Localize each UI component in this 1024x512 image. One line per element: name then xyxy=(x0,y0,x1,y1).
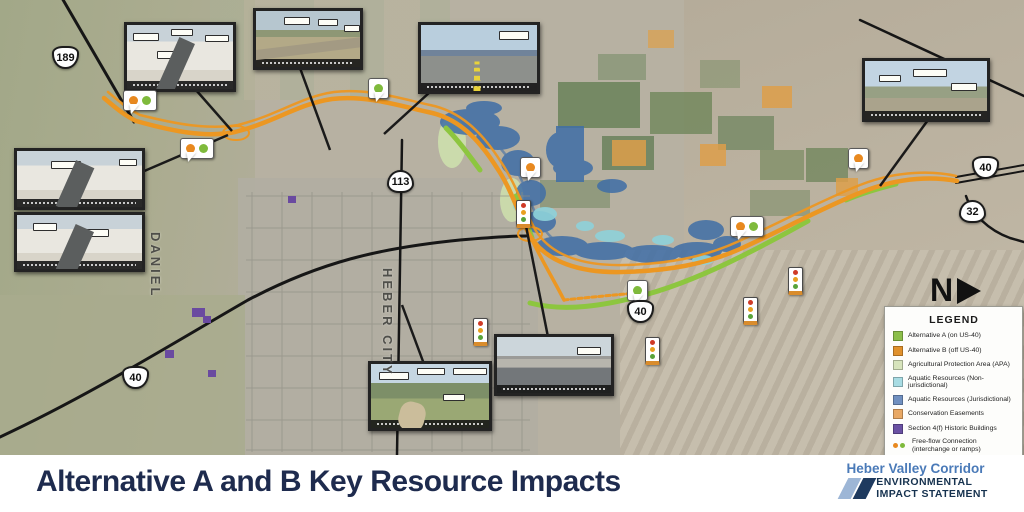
legend-label: Aquatic Resources (Non-jurisdictional) xyxy=(908,375,1015,391)
freeflow-marker xyxy=(730,216,764,237)
legend-title: LEGEND xyxy=(893,314,1015,326)
freeflow-marker xyxy=(848,148,869,169)
legend-item: Agricultural Protection Area (APA) xyxy=(893,360,1015,370)
place-label-daniel: DANIEL xyxy=(148,232,163,298)
field-patches xyxy=(540,54,848,216)
logo-line-environmental: ENVIRONMENTAL xyxy=(876,477,987,489)
legend-label: Agricultural Protection Area (APA) xyxy=(908,361,1010,369)
footer: Alternative A and B Key Resource Impacts… xyxy=(0,455,1024,512)
photo-callout-interchange-winter xyxy=(124,22,236,92)
north-label: N xyxy=(930,272,953,309)
route-shield-sr32: 32 xyxy=(959,200,986,223)
legend-swatch-historic xyxy=(893,424,903,434)
photo-caption xyxy=(865,111,987,119)
photo-caption xyxy=(127,81,233,89)
legend-swatch-conservation xyxy=(893,409,903,419)
map-poster: 189 113 40 32 40 40 DANIEL HEBER CITY N … xyxy=(0,0,1024,512)
photo-caption xyxy=(17,199,142,207)
photo-callout-aerial-rendering-1 xyxy=(14,148,145,210)
logo-line-impact-statement: IMPACT STATEMENT xyxy=(876,489,987,501)
alt-a-dot xyxy=(199,144,208,153)
legend-swatch-alt-b xyxy=(893,346,903,356)
photo-annotation-chip xyxy=(879,75,901,82)
photo-annotation-chip xyxy=(157,51,185,59)
north-arrow: N xyxy=(930,272,981,309)
legend-item: Aquatic Resources (Non-jurisdictional) xyxy=(893,375,1015,391)
photo-annotation-chip xyxy=(33,223,57,231)
signal-marker xyxy=(788,267,803,295)
photo-caption xyxy=(421,83,537,91)
photo-annotation-chip xyxy=(119,159,137,166)
signal-marker xyxy=(645,337,660,365)
legend-label: Section 4(f) Historic Buildings xyxy=(908,425,997,433)
legend-swatch-aquatic-jur xyxy=(893,395,903,405)
photo-annotation-chip xyxy=(344,25,360,32)
legend-item: Section 4(f) Historic Buildings xyxy=(893,424,1015,434)
logo-project-name: Heber Valley Corridor xyxy=(823,461,1008,476)
north-arrow-icon xyxy=(957,278,981,304)
legend-label: Alternative A (on US-40) xyxy=(908,332,981,340)
freeflow-marker xyxy=(123,90,157,111)
place-label-heber-city: HEBER CITY xyxy=(380,268,395,377)
logo-stripes-icon xyxy=(843,478,871,499)
photo-annotation-chip xyxy=(913,69,947,77)
photo-annotation-chip xyxy=(284,17,310,25)
legend-item: Aquatic Resources (Jurisdictional) xyxy=(893,395,1015,405)
photo-annotation-chip xyxy=(51,161,81,169)
legend-item: Alternative B (off US-40) xyxy=(893,346,1015,356)
aerial-map: 189 113 40 32 40 40 DANIEL HEBER CITY N … xyxy=(0,0,1024,455)
logo-eis-text: ENVIRONMENTAL IMPACT STATEMENT xyxy=(876,477,987,500)
signal-marker xyxy=(473,318,488,346)
page-title: Alternative A and B Key Resource Impacts xyxy=(36,465,621,499)
photo-annotation-chip xyxy=(318,19,338,26)
legend-swatch-alt-a xyxy=(893,331,903,341)
legend-label: Aquatic Resources (Jurisdictional) xyxy=(908,396,1011,404)
photo-annotation-chip xyxy=(951,83,977,91)
project-logo: Heber Valley Corridor ENVIRONMENTAL IMPA… xyxy=(823,461,1008,500)
route-shield-sr113: 113 xyxy=(387,170,414,193)
legend-item: Conservation Easements xyxy=(893,409,1015,419)
alt-b-dot xyxy=(129,96,138,105)
alt-b-dot xyxy=(186,144,195,153)
photo-annotation-chip xyxy=(577,347,601,355)
freeflow-marker xyxy=(368,78,389,99)
photo-annotation-chip xyxy=(133,33,159,41)
legend-label: Free-flow Connection (interchange or ram… xyxy=(912,438,1015,454)
legend-item: Alternative A (on US-40) xyxy=(893,331,1015,341)
freeflow-marker xyxy=(520,157,541,178)
photo-annotation-chip xyxy=(499,31,529,40)
legend: LEGEND Alternative A (on US-40) Alternat… xyxy=(884,306,1023,455)
alt-a-dot xyxy=(749,222,758,231)
photo-annotation-chip xyxy=(79,229,109,237)
photo-callout-aerial-rendering-2 xyxy=(14,212,145,272)
legend-label: Conservation Easements xyxy=(908,410,984,418)
photo-annotation-chip xyxy=(443,394,465,401)
photo-annotation-chip xyxy=(453,368,487,375)
alt-a-dot xyxy=(374,84,383,93)
photo-callout-railtrail-crossing xyxy=(253,8,363,70)
signal-marker xyxy=(516,200,531,228)
photo-caption xyxy=(497,385,611,393)
freeflow-marker xyxy=(627,280,648,301)
legend-swatch-aquatic-nonjur xyxy=(893,377,903,387)
legend-label: Alternative B (off US-40) xyxy=(908,347,982,355)
freeflow-marker xyxy=(180,138,214,159)
photo-callout-us40-highway xyxy=(418,22,540,94)
photo-caption xyxy=(17,261,142,269)
alt-a-dot xyxy=(633,286,642,295)
legend-swatch-freeflow xyxy=(893,441,907,451)
legend-swatch-apa xyxy=(893,360,903,370)
photo-caption xyxy=(256,59,360,67)
photo-annotation-chip xyxy=(417,368,445,375)
signal-marker xyxy=(743,297,758,325)
photo-caption xyxy=(371,420,489,428)
photo-callout-east-valley xyxy=(862,58,990,122)
alt-a-dot xyxy=(142,96,151,105)
legend-item: Free-flow Connection (interchange or ram… xyxy=(893,438,1015,454)
photo-annotation-chip xyxy=(205,35,229,42)
photo-callout-main-street xyxy=(494,334,614,396)
photo-annotation-chip xyxy=(171,29,193,36)
alt-b-dot xyxy=(736,222,745,231)
alt-b-dot xyxy=(854,154,863,163)
alt-b-dot xyxy=(526,163,535,172)
